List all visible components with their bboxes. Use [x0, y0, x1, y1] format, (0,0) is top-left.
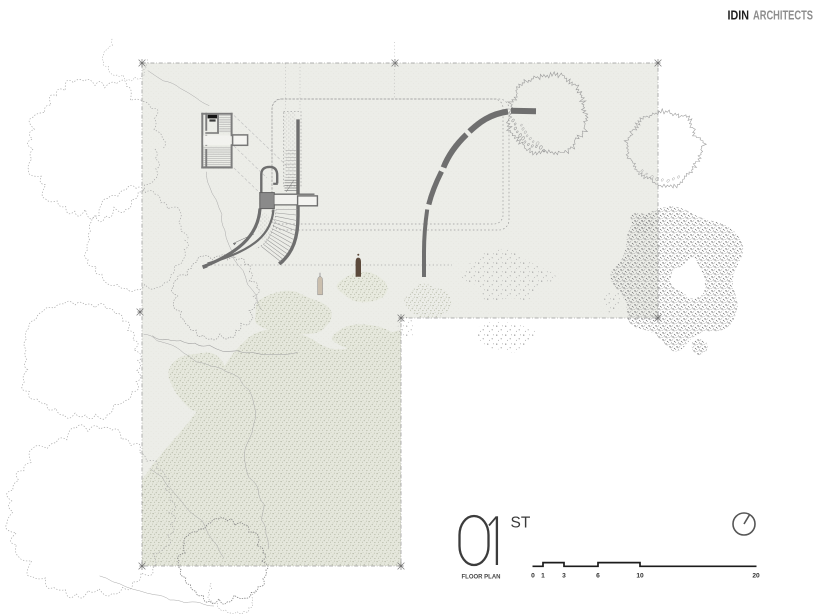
- svg-text:IDIN: IDIN: [728, 8, 750, 23]
- svg-text:ST: ST: [511, 515, 531, 532]
- svg-text:1: 1: [541, 573, 545, 580]
- svg-text:20: 20: [752, 573, 760, 580]
- svg-text:ARCHITECTS: ARCHITECTS: [753, 8, 813, 23]
- svg-text:3: 3: [562, 573, 566, 580]
- svg-text:0: 0: [531, 573, 535, 580]
- svg-text:10: 10: [636, 573, 644, 580]
- svg-text:FLOOR PLAN: FLOOR PLAN: [462, 574, 501, 581]
- svg-text:6: 6: [596, 573, 600, 580]
